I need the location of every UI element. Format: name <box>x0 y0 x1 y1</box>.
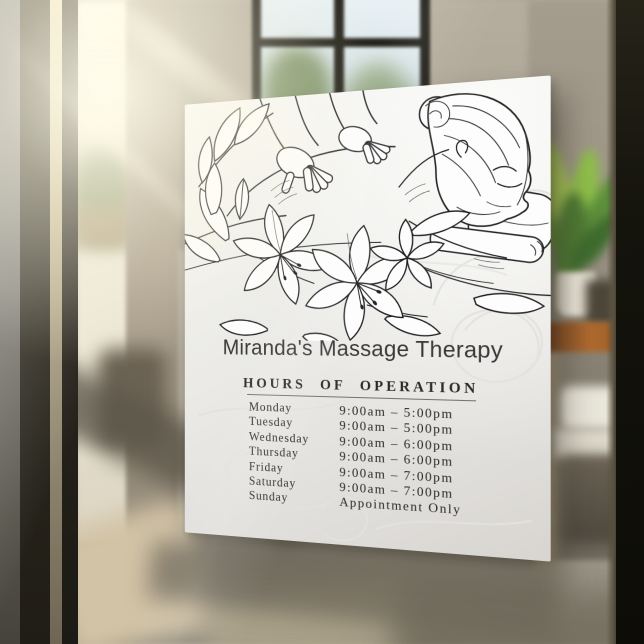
door-frame-right <box>616 0 644 644</box>
hours-schedule: Monday 9:00am – 5:00pm Tuesday 9:00am – … <box>249 400 487 520</box>
outdoor-roof <box>74 210 132 246</box>
left-wall-strip <box>0 0 22 644</box>
window-mullion <box>252 38 430 47</box>
door-frame-left <box>20 0 52 644</box>
outdoor-view-strip <box>74 0 132 560</box>
massage-poster: Miranda's Massage Therapy HOURS OF OPERA… <box>185 75 551 561</box>
window-scene: Miranda's Massage Therapy HOURS OF OPERA… <box>0 0 644 644</box>
